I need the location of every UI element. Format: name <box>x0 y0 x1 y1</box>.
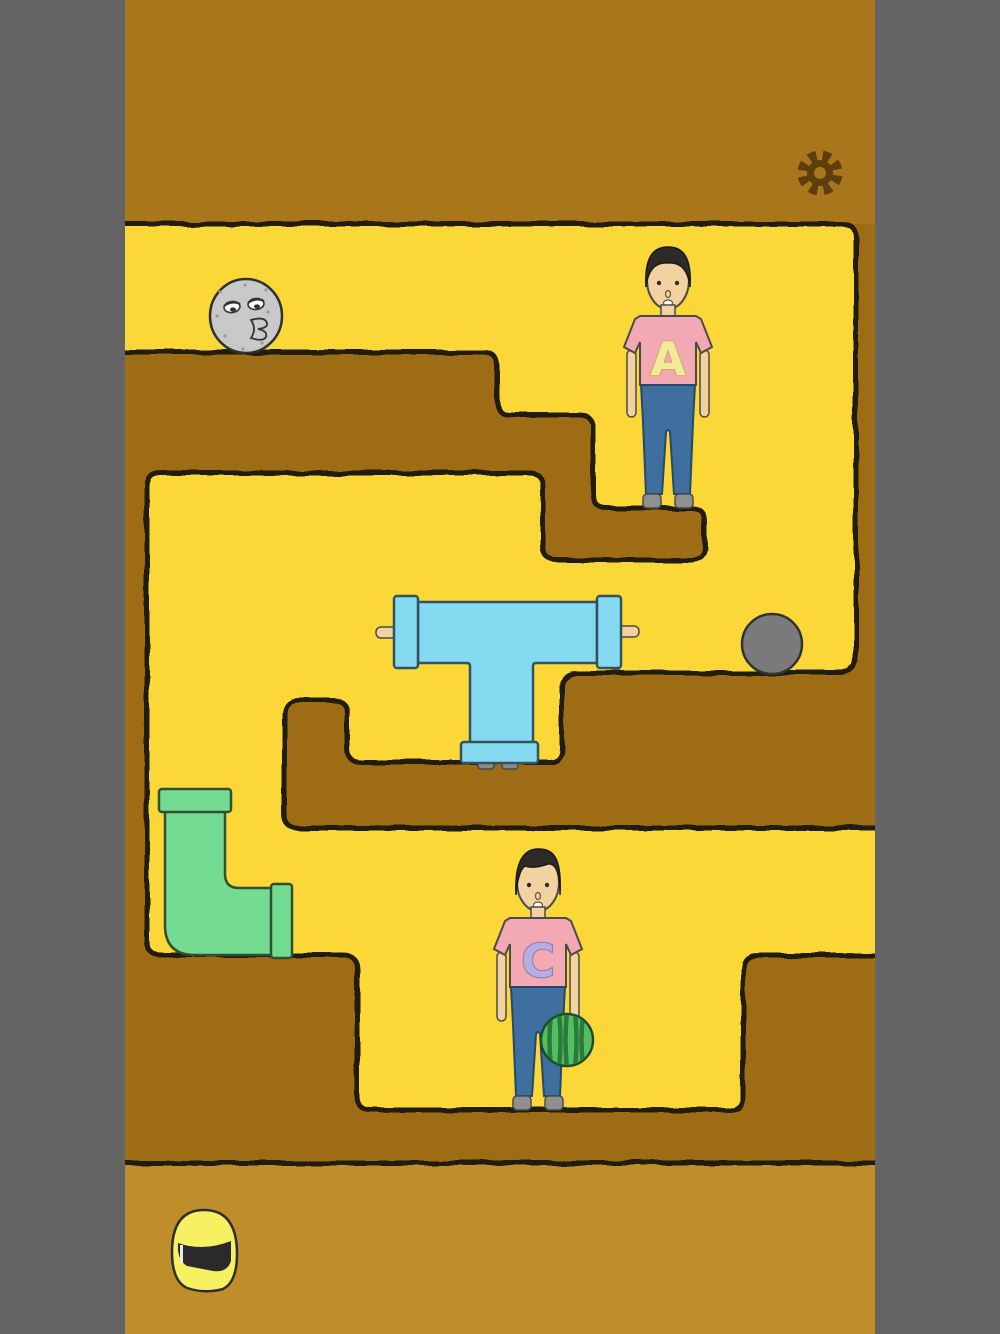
game-screen: A <box>0 0 1000 1334</box>
stone-ball[interactable] <box>742 614 802 674</box>
maze-canvas: A <box>125 0 875 1334</box>
left-arm <box>627 350 636 417</box>
right-arm <box>700 350 709 417</box>
visor-highlight <box>180 1245 183 1263</box>
left-shoe <box>513 1096 531 1110</box>
helmet[interactable] <box>172 1210 237 1291</box>
left-shoe <box>643 494 661 508</box>
shirt-letter-a: A <box>650 332 686 386</box>
elbow-flange-top <box>159 789 231 812</box>
top-dirt-band <box>125 0 875 224</box>
pipe-flange-bottom <box>461 742 538 763</box>
right-shoe <box>675 494 693 508</box>
left-arm <box>497 952 506 1021</box>
right-shoe <box>545 1096 563 1110</box>
shirt-letter-c: C <box>521 934 555 988</box>
pipe-flange-left <box>394 596 418 668</box>
watermelon[interactable] <box>541 1012 593 1068</box>
pipe-flange-right <box>597 596 621 668</box>
playfield: A <box>125 0 875 1334</box>
elbow-flange-right <box>271 884 292 958</box>
moon-face[interactable] <box>210 279 282 353</box>
